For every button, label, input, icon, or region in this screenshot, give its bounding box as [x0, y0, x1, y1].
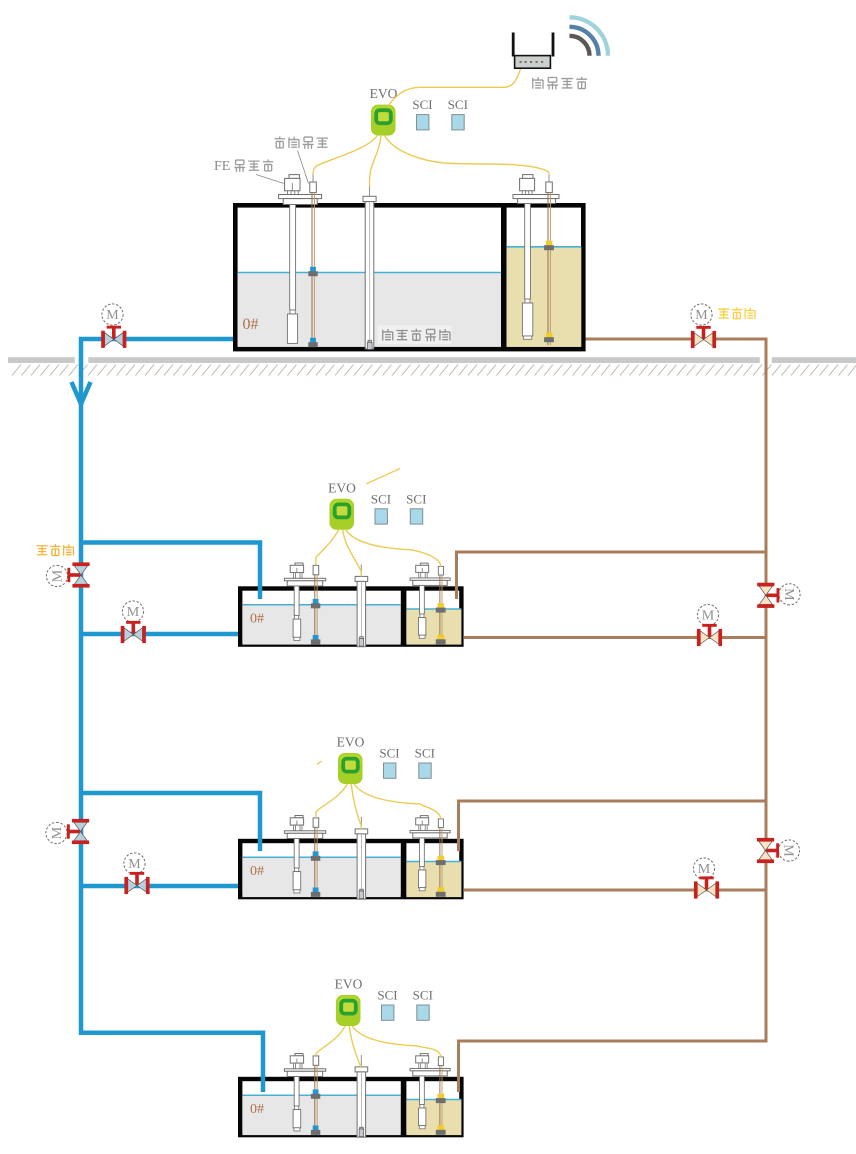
- svg-text:0#: 0#: [243, 316, 259, 333]
- svg-text:FE: FE: [214, 159, 230, 174]
